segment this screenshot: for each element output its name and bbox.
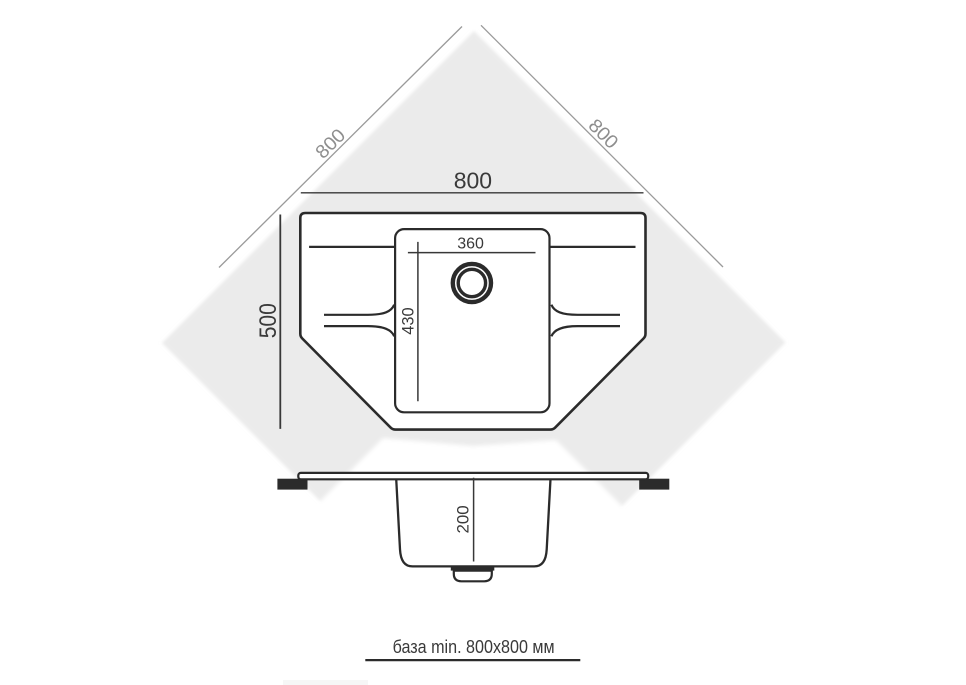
svg-text:200: 200 — [453, 505, 472, 533]
svg-text:база min. 800x800 мм: база min. 800x800 мм — [393, 637, 555, 657]
svg-text:500: 500 — [255, 303, 282, 338]
svg-text:360: 360 — [457, 236, 484, 253]
svg-text:430: 430 — [398, 307, 417, 334]
svg-text:800: 800 — [312, 125, 350, 163]
svg-text:800: 800 — [454, 168, 492, 194]
